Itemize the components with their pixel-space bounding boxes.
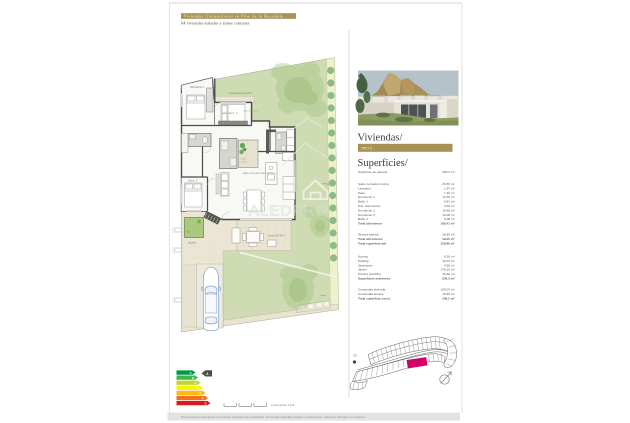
svg-text:Viviendas Unifamiliares en Pil: Viviendas Unifamiliares en Pilar de la H…: [184, 14, 284, 19]
svg-text:Dormitorio 1: Dormitorio 1: [358, 195, 375, 199]
svg-text:Terraza abierta: Terraza abierta: [358, 233, 379, 237]
svg-text:18,45 m²: 18,45 m²: [442, 237, 454, 241]
svg-text:3,56 m²: 3,56 m²: [444, 204, 455, 208]
svg-text:8,90 m²: 8,90 m²: [444, 255, 455, 259]
svg-text:5,41 m²: 5,41 m²: [444, 200, 455, 204]
svg-text:6.50: 6.50: [326, 185, 330, 187]
svg-text:16,07 m²: 16,07 m²: [442, 259, 454, 263]
svg-text:Baño 2: Baño 2: [358, 217, 368, 221]
svg-text:Construida vivienda: Construida vivienda: [358, 288, 385, 292]
svg-text:10,60 m²: 10,60 m²: [442, 208, 454, 212]
svg-text:278,15 m²: 278,15 m²: [441, 268, 455, 272]
svg-text:Construida terraza: Construida terraza: [358, 292, 384, 296]
svg-text:B: B: [192, 376, 194, 380]
svg-text:Baño 1: Baño 1: [358, 200, 368, 204]
svg-text:13,46 m²: 13,46 m²: [442, 195, 454, 199]
svg-text:5,08 m²: 5,08 m²: [444, 217, 455, 221]
svg-text:terraza 20.49 m: terraza 20.49 m: [268, 235, 285, 238]
svg-text:Dormitorio 2: Dormitorio 2: [358, 208, 375, 212]
svg-text:Plano de planta de vivienda ti: Plano de planta de vivienda tipo C con p…: [181, 416, 365, 419]
svg-text:1,97 m²: 1,97 m²: [444, 186, 455, 190]
svg-text:Dist. dormitorios: Dist. dormitorios: [358, 204, 381, 208]
svg-text:F: F: [202, 396, 204, 400]
svg-text:Superficie de parcela: Superficie de parcela: [358, 170, 387, 174]
svg-text:108,41 m²: 108,41 m²: [440, 222, 454, 226]
svg-text:salon comedor cocina 29.55 m: salon comedor cocina 29.55 m: [243, 172, 276, 175]
svg-text:patio: patio: [241, 158, 247, 161]
svg-text:E: E: [200, 391, 202, 395]
svg-text:TIPO C: TIPO C: [361, 146, 373, 150]
svg-text:485,3 m²: 485,3 m²: [442, 170, 454, 174]
svg-text:Jardineras: Jardineras: [358, 263, 373, 267]
svg-text:Jardin: Jardin: [320, 294, 327, 297]
svg-text:Salón comedor cocina: Salón comedor cocina: [358, 182, 389, 186]
svg-text:120,07 m²: 120,07 m²: [441, 288, 455, 292]
svg-text:Lavadero: Lavadero: [358, 186, 371, 190]
svg-text:Total superficie const.: Total superficie const.: [358, 296, 391, 300]
svg-text:Acceso: Acceso: [358, 255, 368, 259]
svg-text:Viviendas/: Viviendas/: [358, 133, 403, 144]
svg-text:Parking: Parking: [358, 259, 369, 263]
svg-text:Piscina (bordillo): Piscina (bordillo): [358, 272, 381, 276]
svg-text:Total superficie útil: Total superficie útil: [358, 241, 386, 245]
svg-text:18,45 m²: 18,45 m²: [442, 292, 454, 296]
svg-text:Dorm. 1: Dorm. 1: [228, 111, 238, 115]
svg-text:Jardín: Jardín: [358, 268, 367, 272]
svg-text:terraza abierta 5.08 m: terraza abierta 5.08 m: [229, 92, 252, 95]
svg-text:Dorm. 3: Dorm. 3: [188, 179, 198, 183]
svg-text:Paso: Paso: [358, 191, 365, 195]
svg-text:4,59 m²: 4,59 m²: [444, 263, 455, 267]
svg-text:7,40 m²: 7,40 m²: [444, 191, 455, 195]
svg-text:18,45 m²: 18,45 m²: [442, 233, 454, 237]
svg-text:29,55 m²: 29,55 m²: [442, 182, 454, 186]
svg-text:138,5 m²: 138,5 m²: [442, 296, 454, 300]
svg-text:4.60 m: 4.60 m: [241, 162, 248, 164]
svg-text:64 viviendas aisladas y zonas: 64 viviendas aisladas y zonas comunes: [181, 20, 250, 25]
svg-text:10,08 m²: 10,08 m²: [442, 213, 454, 217]
svg-text:Acceso: Acceso: [188, 242, 197, 245]
svg-text:26,60 m²: 26,60 m²: [442, 272, 454, 276]
svg-text:334,3 m²: 334,3 m²: [442, 277, 454, 281]
svg-text:126,86 m²: 126,86 m²: [440, 241, 454, 245]
svg-text:Superficies/: Superficies/: [358, 158, 408, 169]
svg-text:jardin 278.15 m: jardin 278.15 m: [242, 110, 258, 113]
svg-text:Superficies exteriores: Superficies exteriores: [358, 277, 391, 281]
svg-text:D: D: [197, 386, 199, 390]
svg-text:Total útil interior: Total útil interior: [358, 222, 383, 226]
svg-text:Total útil exterior: Total útil exterior: [358, 237, 384, 241]
svg-text:ALEDPRO: ALEDPRO: [249, 203, 328, 220]
svg-text:Dormitorio 3: Dormitorio 3: [358, 213, 375, 217]
svg-text:escala gráfica 1:200: escala gráfica 1:200: [271, 403, 295, 407]
svg-text:Dormitorio 2: Dormitorio 2: [190, 85, 205, 89]
